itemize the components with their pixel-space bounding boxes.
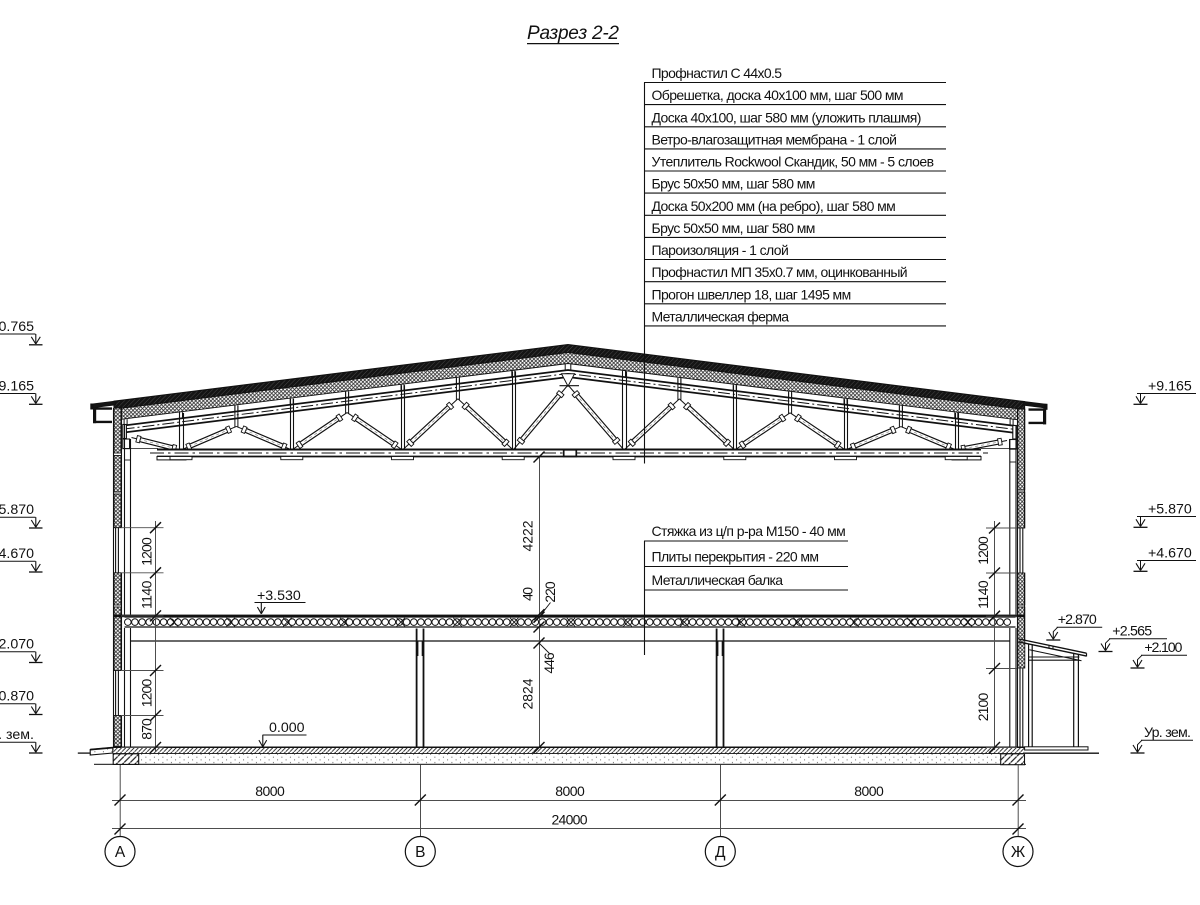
svg-text:+9.165: +9.165 [1148, 379, 1192, 395]
svg-text:Металлическая ферма: Металлическая ферма [652, 308, 790, 324]
svg-text:Пароизоляция - 1 слой: Пароизоляция - 1 слой [652, 242, 789, 258]
svg-text:8000: 8000 [854, 783, 884, 799]
svg-text:В: В [415, 844, 425, 861]
svg-text:+2.565: +2.565 [1112, 624, 1152, 640]
svg-text:Утеплитель Rockwool Скандик, 5: Утеплитель Rockwool Скандик, 50 мм - 5 с… [652, 154, 935, 170]
svg-text:220: 220 [542, 581, 558, 603]
svg-text:+2.100: +2.100 [1144, 640, 1182, 656]
svg-text:Доска 50х200 мм (на ребро), ша: Доска 50х200 мм (на ребро), шаг 580 мм [652, 198, 896, 214]
svg-text:Стяжка из ц/п р-ра М150 - 40 м: Стяжка из ц/п р-ра М150 - 40 мм [652, 523, 846, 539]
svg-text:+10.765: +10.765 [0, 319, 34, 335]
svg-text:Профнастил С 44х0.5: Профнастил С 44х0.5 [652, 65, 783, 81]
svg-text:Профнастил МП 35х0.7 мм, оцинк: Профнастил МП 35х0.7 мм, оцинкованный [652, 264, 908, 280]
svg-text:446: 446 [541, 652, 557, 674]
svg-text:Ур. зем.: Ур. зем. [1144, 725, 1191, 741]
svg-text:+2.870: +2.870 [1058, 612, 1097, 628]
svg-text:40: 40 [520, 587, 536, 601]
svg-text:1200: 1200 [139, 679, 155, 708]
svg-text:А: А [115, 844, 126, 861]
svg-text:+2.070: +2.070 [0, 637, 34, 653]
svg-text:Разрез 2-2: Разрез 2-2 [527, 23, 619, 44]
svg-text:2824: 2824 [520, 678, 536, 709]
svg-text:+9.165: +9.165 [0, 379, 34, 395]
svg-text:Металлическая балка: Металлическая балка [652, 572, 784, 588]
svg-text:Плиты перекрытия - 220 мм: Плиты перекрытия - 220 мм [652, 549, 820, 565]
svg-text:+3.530: +3.530 [257, 588, 301, 604]
svg-text:+4.670: +4.670 [0, 546, 34, 562]
svg-text:1200: 1200 [139, 537, 155, 566]
svg-text:+5.870: +5.870 [0, 502, 34, 518]
svg-text:2100: 2100 [975, 693, 991, 722]
svg-text:+0.870: +0.870 [0, 689, 34, 705]
svg-text:Д: Д [715, 844, 726, 861]
svg-text:Брус 50х50 мм, шаг 580 мм: Брус 50х50 мм, шаг 580 мм [652, 220, 816, 236]
svg-text:Ветро-влагозащитная мембрана -: Ветро-влагозащитная мембрана - 1 слой [652, 131, 898, 147]
svg-text:1140: 1140 [975, 580, 991, 609]
svg-text:8000: 8000 [555, 783, 585, 799]
svg-text:8000: 8000 [255, 783, 285, 799]
svg-text:Ур. зем.: Ур. зем. [0, 727, 34, 743]
svg-text:870: 870 [139, 718, 155, 740]
svg-text:Доска 40х100, шаг 580 мм (улож: Доска 40х100, шаг 580 мм (уложить плашмя… [652, 109, 922, 125]
svg-text:Прогон швеллер 18, шаг 1495 мм: Прогон швеллер 18, шаг 1495 мм [652, 286, 852, 302]
svg-text:4222: 4222 [520, 520, 536, 551]
svg-text:24000: 24000 [552, 812, 588, 828]
svg-text:+5.870: +5.870 [1148, 502, 1192, 518]
svg-text:1140: 1140 [139, 580, 155, 609]
svg-text:+4.670: +4.670 [1148, 546, 1192, 562]
svg-text:Ж: Ж [1011, 844, 1026, 861]
svg-text:Брус 50х50 мм, шаг 580 мм: Брус 50х50 мм, шаг 580 мм [652, 176, 816, 192]
svg-text:Обрешетка, доска 40х100 мм, ша: Обрешетка, доска 40х100 мм, шаг 500 мм [652, 87, 904, 103]
svg-text:1200: 1200 [975, 536, 991, 565]
svg-text:0.000: 0.000 [269, 720, 305, 736]
